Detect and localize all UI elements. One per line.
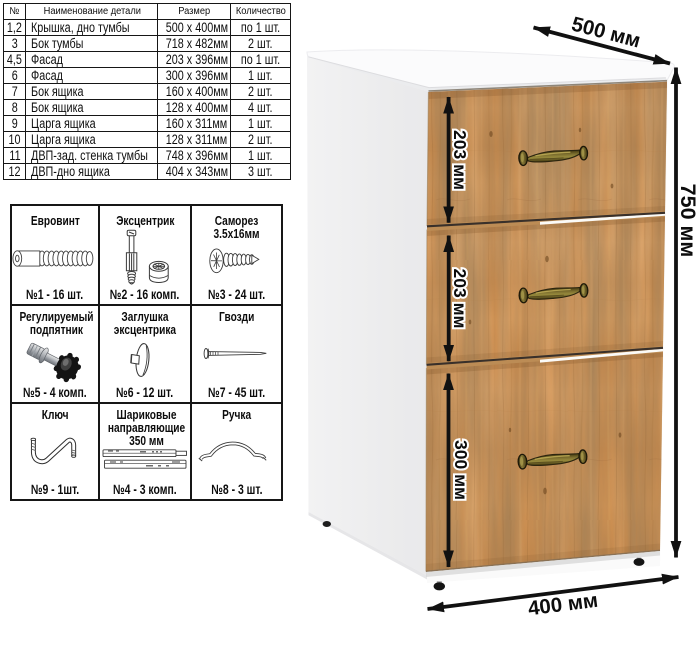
svg-text:300 мм: 300 мм xyxy=(451,440,471,500)
svg-text:750 мм: 750 мм xyxy=(676,184,700,258)
svg-text:203 мм: 203 мм xyxy=(450,130,470,190)
svg-text:203 мм: 203 мм xyxy=(450,269,470,329)
